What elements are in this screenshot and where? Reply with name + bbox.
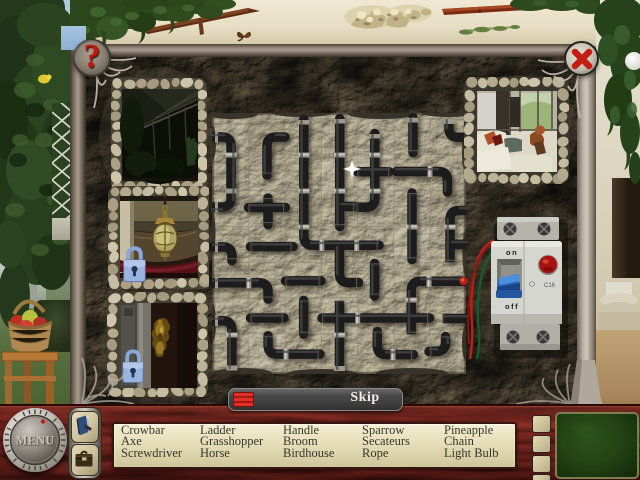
svg-text:C16: C16 <box>544 283 556 289</box>
svg-text:on: on <box>506 248 518 257</box>
svg-text:off: off <box>505 302 519 311</box>
svg-text:MENU: MENU <box>16 434 55 448</box>
